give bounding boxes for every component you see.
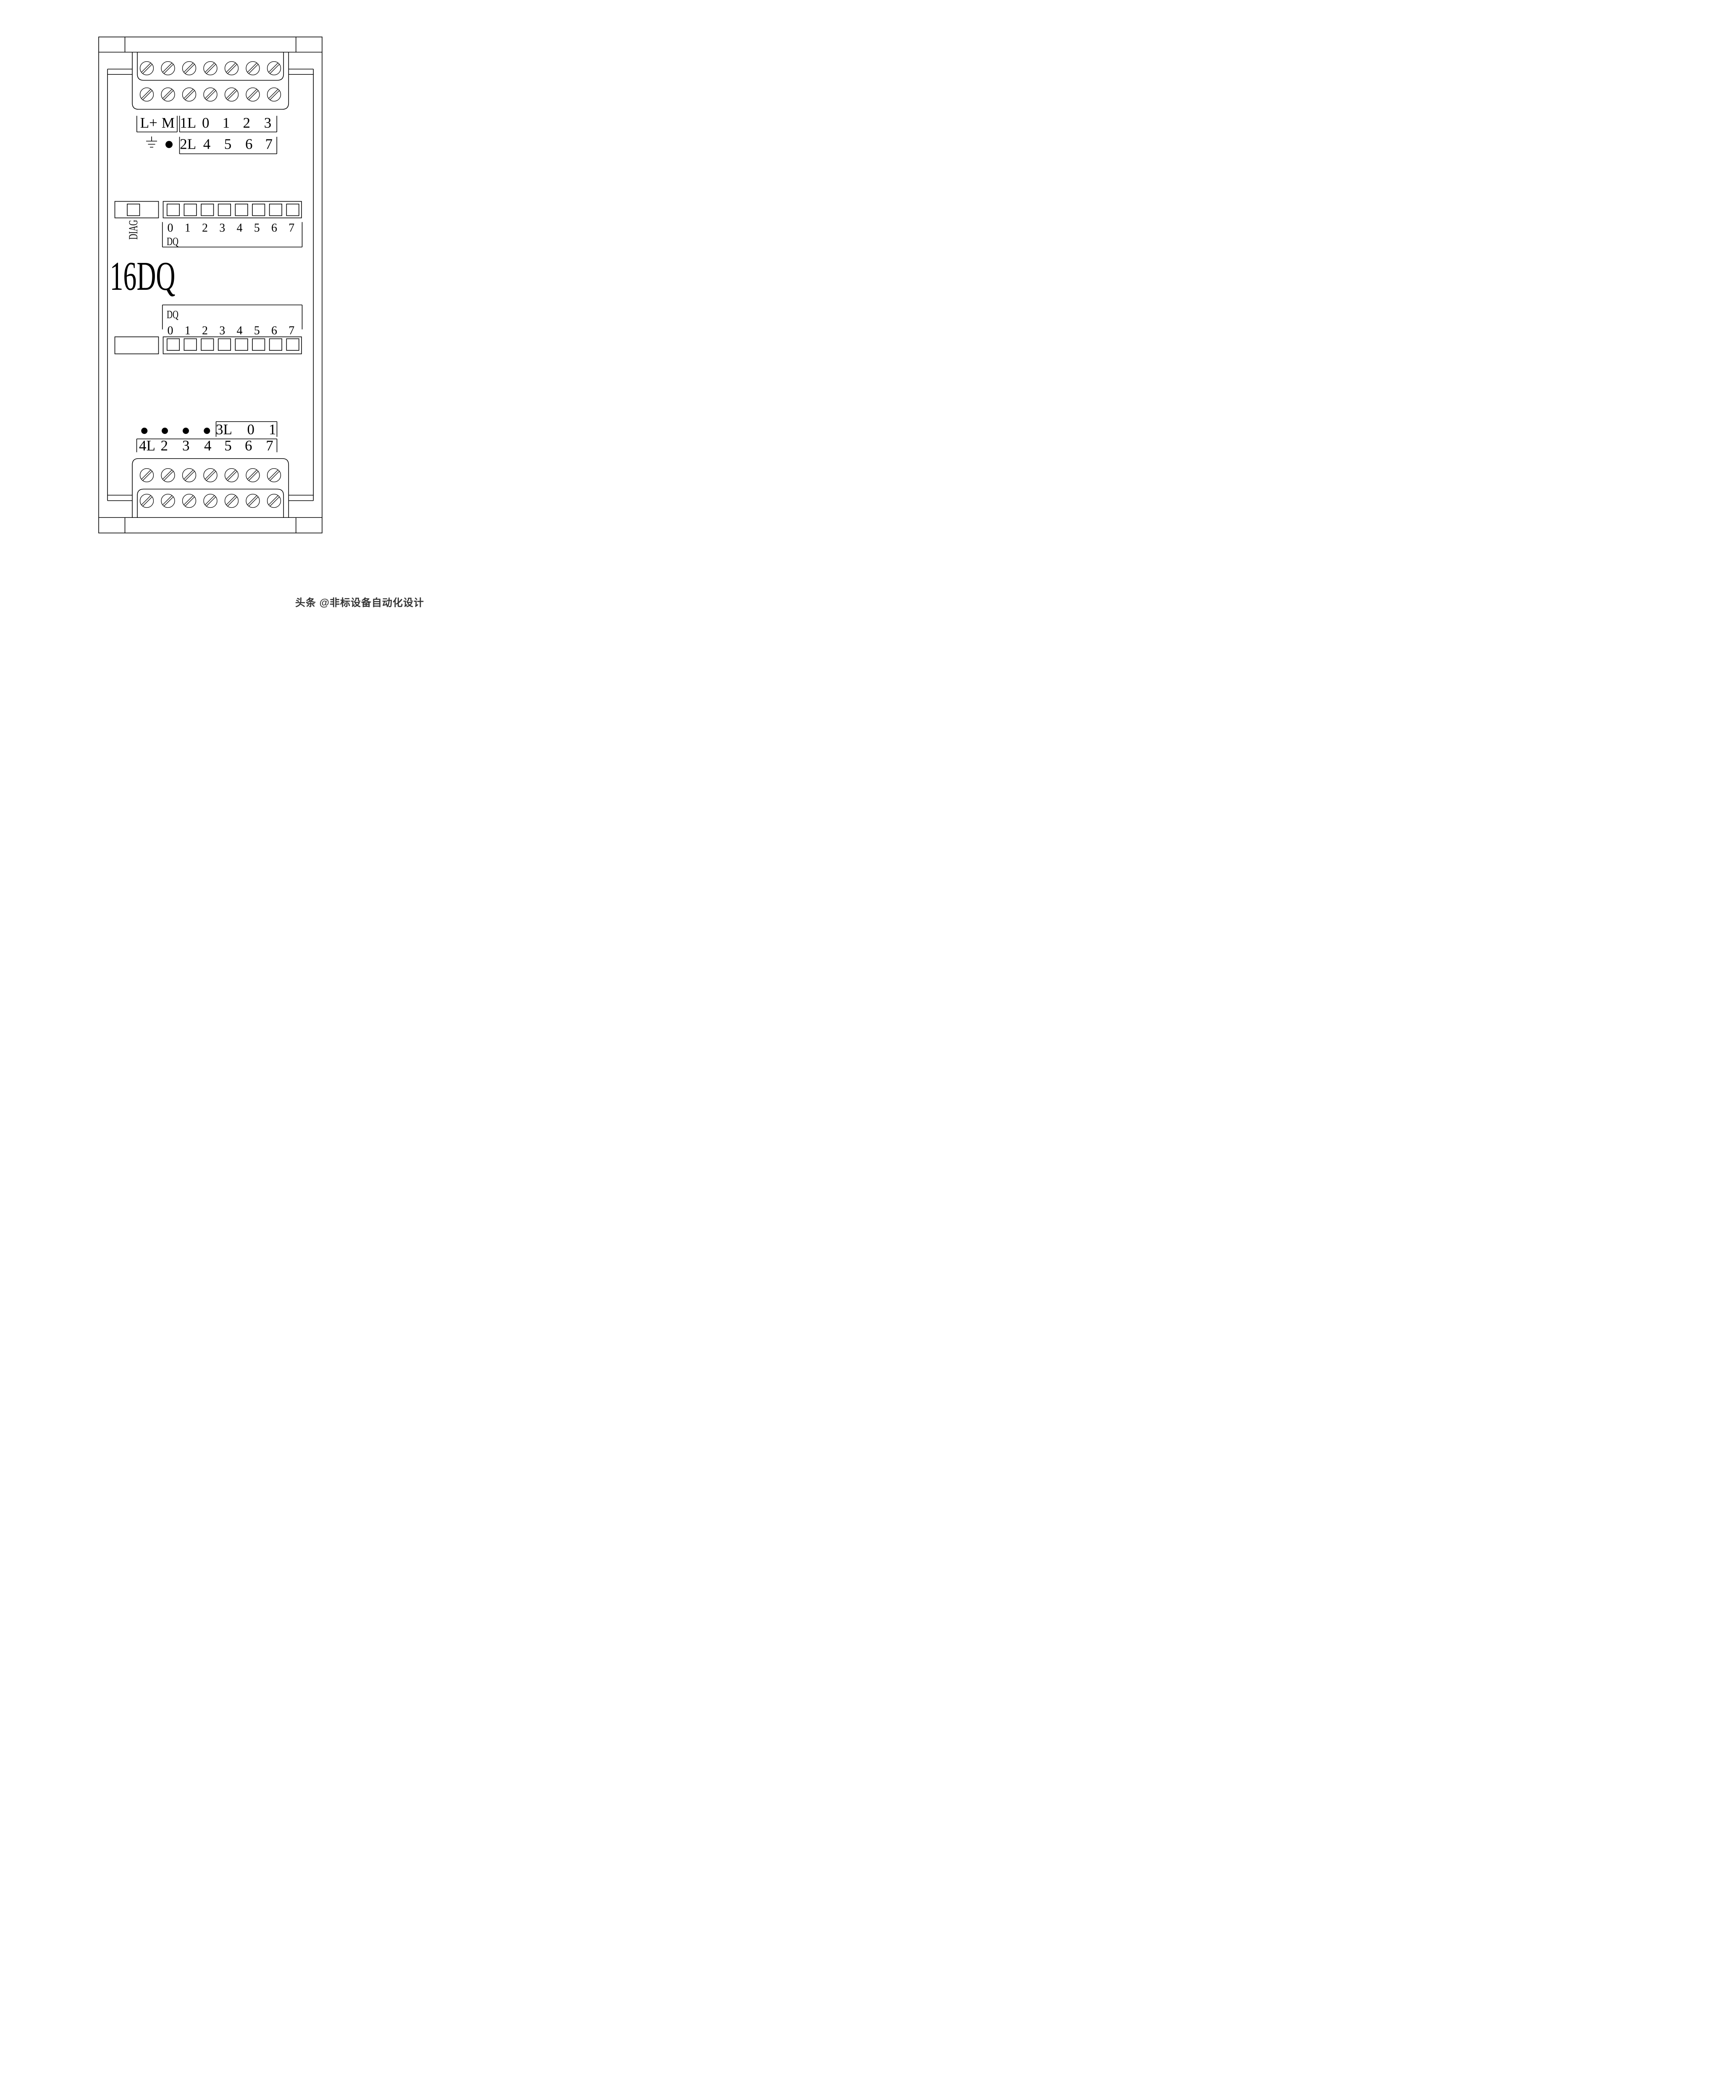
led-ch-label: 5 (254, 324, 260, 337)
terminal-label-4L: 4L (139, 437, 155, 454)
led-ch-label: 1 (185, 324, 191, 337)
terminal-label-M: M (162, 115, 175, 131)
screw-terminal-icon (267, 62, 281, 75)
terminal-label-ch2b: 2 (161, 437, 168, 454)
terminal-label-ch0b: 0 (247, 421, 255, 438)
led-ch-label: 2 (202, 222, 208, 235)
led-window (201, 339, 214, 351)
led-windows-top (167, 204, 299, 216)
led-ch-label: 6 (271, 222, 277, 235)
terminal-label-1L: 1L (180, 115, 196, 131)
screw-terminal-icon (183, 494, 196, 508)
terminal-label-ch5b: 5 (224, 437, 232, 454)
watermark-text: 头条 @非标设备自动化设计 (295, 594, 424, 609)
screw-terminal-icon (246, 62, 260, 75)
led-window (252, 204, 265, 216)
led-window (167, 204, 180, 216)
led-window (218, 339, 231, 351)
terminal-label-ch3b: 3 (182, 437, 190, 454)
terminal-label-ch6b: 6 (245, 437, 252, 454)
terminal-label-ch0: 0 (202, 115, 210, 131)
screw-terminal-icon (246, 469, 260, 482)
led-ch-label: 1 (185, 222, 191, 235)
led-group-label-bottom: DQ (167, 309, 178, 321)
led-ch-label: 4 (237, 324, 243, 337)
screw-terminal-icon (183, 62, 196, 75)
terminal-label-ch6: 6 (245, 136, 253, 152)
led-window (235, 339, 248, 351)
led-label-box-bottom (163, 305, 302, 329)
module-terminal-diagram: L+ M 1L 0 1 2 3 2L 4 5 6 7 DIAG 0 1 2 3 … (0, 0, 434, 614)
screw-terminal-icon (140, 88, 154, 101)
led-ch-label: 3 (219, 324, 225, 337)
led-window (286, 339, 299, 351)
led-window (270, 339, 282, 351)
connection-dot-icon (141, 428, 147, 434)
led-window (286, 204, 299, 216)
screw-terminal-icon (225, 469, 239, 482)
terminal-label-ch7: 7 (265, 136, 273, 152)
screw-terminal-icon (183, 469, 196, 482)
screw-terminal-icon (204, 469, 217, 482)
terminal-cavity-top-inner (137, 52, 283, 80)
led-ch-label: 5 (254, 222, 260, 235)
screw-terminal-icon (225, 494, 239, 508)
terminal-label-2L: 2L (180, 136, 196, 152)
screw-terminal-icon (225, 62, 239, 75)
terminal-cavity-top-outer (132, 52, 288, 109)
led-label-box-top (163, 222, 302, 247)
screw-terminal-icon (183, 88, 196, 101)
led-windows-bottom (167, 339, 299, 351)
screw-row-2 (140, 88, 281, 101)
led-ch-label: 0 (168, 222, 173, 235)
led-ch-label: 0 (168, 324, 173, 337)
diag-led-window (127, 204, 140, 216)
led-ch-label: 6 (271, 324, 277, 337)
led-window (235, 204, 248, 216)
screw-terminal-icon (204, 88, 217, 101)
terminal-cavity-bottom-outer (132, 459, 288, 518)
terminal-cavity-bottom-inner (137, 489, 283, 518)
connection-dot-icon (204, 428, 210, 434)
screw-terminal-icon (204, 494, 217, 508)
diagram-canvas: L+ M 1L 0 1 2 3 2L 4 5 6 7 DIAG 0 1 2 3 … (0, 0, 434, 614)
connection-dots-bottom (141, 428, 210, 434)
terminal-label-ch5: 5 (224, 136, 232, 152)
screw-terminal-icon (225, 88, 239, 101)
screw-terminal-icon (267, 88, 281, 101)
diag-label: DIAG (126, 220, 140, 240)
led-ch-label: 4 (237, 222, 243, 235)
terminal-label-ch2: 2 (243, 115, 251, 131)
led-ch-label: 7 (288, 222, 294, 235)
screw-terminal-icon (140, 469, 154, 482)
terminal-label-ch3: 3 (264, 115, 272, 131)
screw-terminal-icon (246, 494, 260, 508)
led-window (201, 204, 214, 216)
terminal-label-ch7b: 7 (266, 437, 273, 454)
screw-terminal-icon (204, 62, 217, 75)
led-ch-label: 7 (288, 324, 294, 337)
screw-terminal-icon (161, 88, 175, 101)
terminal-label-ch4: 4 (203, 136, 211, 152)
led-ch-label: 2 (202, 324, 208, 337)
screw-row-3 (140, 469, 281, 482)
led-window (270, 204, 282, 216)
terminal-label-ch1: 1 (223, 115, 230, 131)
terminal-label-3L: 3L (216, 421, 232, 438)
led-window (167, 339, 180, 351)
terminal-label-ch4b: 4 (204, 437, 212, 454)
screw-terminal-icon (161, 62, 175, 75)
screw-terminal-icon (161, 494, 175, 508)
led-window (252, 339, 265, 351)
screw-terminal-icon (140, 494, 154, 508)
led-window (184, 204, 197, 216)
terminal-label-ch1b: 1 (269, 421, 276, 438)
module-title: 16DQ (110, 254, 176, 299)
screw-terminal-icon (161, 469, 175, 482)
connection-dot-icon (162, 428, 168, 434)
screw-terminal-icon (267, 469, 281, 482)
terminal-label-Lplus: L+ (140, 115, 157, 131)
ground-icon (146, 136, 157, 147)
led-window (218, 204, 231, 216)
screw-row-4 (140, 494, 281, 508)
screw-terminal-icon (140, 62, 154, 75)
screw-terminal-icon (267, 494, 281, 508)
connection-dot-icon (183, 428, 189, 434)
led-group-label-top: DQ (167, 236, 178, 248)
connection-dot-icon (165, 141, 173, 148)
led-ch-label: 3 (219, 222, 225, 235)
screw-row-1 (140, 62, 281, 75)
screw-terminal-icon (246, 88, 260, 101)
blank-led-box (115, 337, 159, 354)
led-window (184, 339, 197, 351)
